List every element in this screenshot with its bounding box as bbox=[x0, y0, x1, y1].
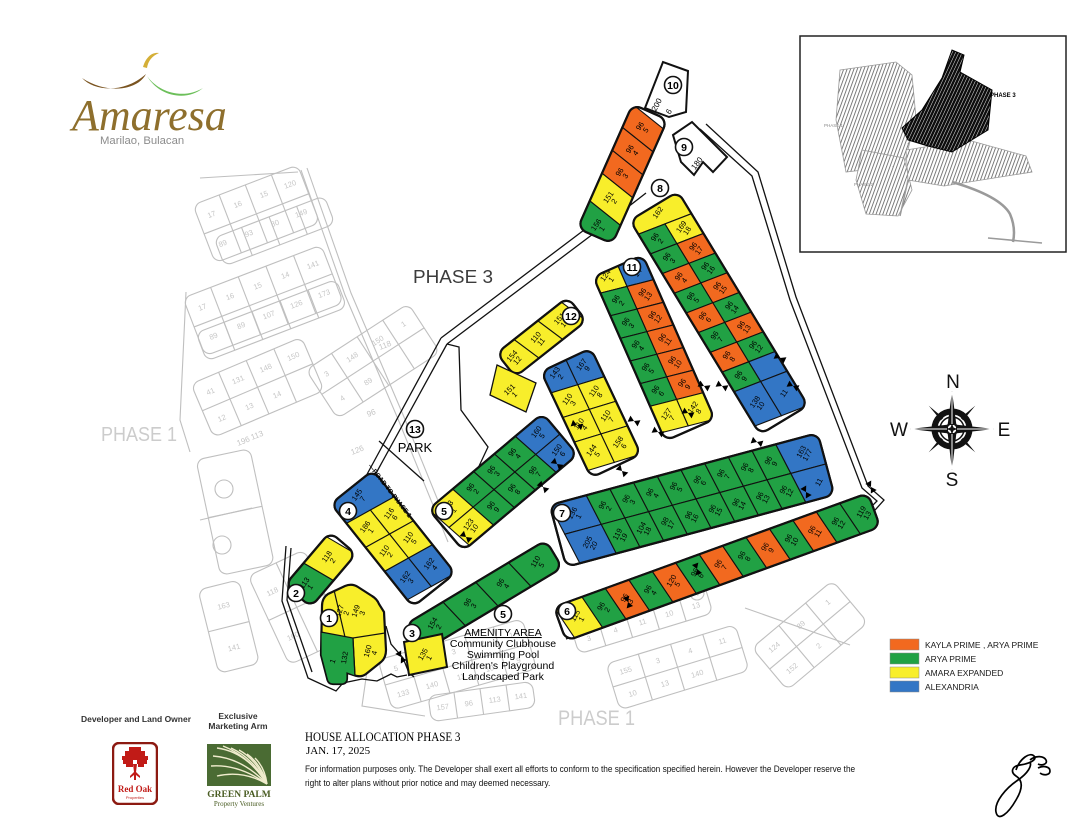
svg-text:Amaresa: Amaresa bbox=[69, 91, 227, 140]
svg-text:5: 5 bbox=[441, 506, 447, 518]
svg-text:PHASE 1: PHASE 1 bbox=[101, 424, 177, 446]
svg-text:12: 12 bbox=[565, 311, 577, 323]
svg-text:13: 13 bbox=[409, 424, 421, 436]
svg-text:S: S bbox=[946, 470, 959, 491]
svg-text:KAYLA PRIME , ARYA PRIME: KAYLA PRIME , ARYA PRIME bbox=[925, 640, 1039, 650]
svg-text:11: 11 bbox=[626, 262, 637, 274]
svg-text:Red Oak: Red Oak bbox=[118, 784, 152, 794]
svg-text:Landscaped Park: Landscaped Park bbox=[462, 671, 544, 683]
svg-text:PHASE 3: PHASE 3 bbox=[990, 93, 1016, 99]
svg-text:10: 10 bbox=[667, 80, 679, 92]
svg-text:E: E bbox=[998, 420, 1011, 441]
svg-text:2: 2 bbox=[293, 588, 299, 600]
svg-text:113: 113 bbox=[488, 694, 501, 705]
svg-text:8: 8 bbox=[657, 183, 663, 195]
svg-text:9: 9 bbox=[681, 142, 687, 154]
svg-text:PHASE 2: PHASE 2 bbox=[854, 182, 874, 187]
svg-text:96: 96 bbox=[464, 698, 474, 708]
svg-text:ALEXANDRIA: ALEXANDRIA bbox=[925, 682, 979, 692]
svg-text:Properties: Properties bbox=[126, 795, 144, 800]
svg-text:GREEN PALM: GREEN PALM bbox=[207, 790, 270, 800]
svg-text:PARK: PARK bbox=[398, 440, 433, 455]
svg-text:157: 157 bbox=[436, 702, 450, 713]
svg-text:4: 4 bbox=[345, 506, 351, 518]
svg-text:ARYA PRIME: ARYA PRIME bbox=[925, 654, 977, 664]
svg-text:5: 5 bbox=[500, 609, 506, 621]
svg-text:6: 6 bbox=[564, 606, 570, 618]
svg-text:N: N bbox=[946, 372, 960, 393]
svg-text:Property Ventures: Property Ventures bbox=[214, 800, 264, 808]
svg-text:PHASE 1: PHASE 1 bbox=[558, 707, 635, 730]
svg-text:PHASE 1: PHASE 1 bbox=[824, 123, 844, 128]
svg-text:7: 7 bbox=[559, 508, 565, 520]
svg-text:1: 1 bbox=[326, 613, 332, 625]
svg-text:Marilao, Bulacan: Marilao, Bulacan bbox=[100, 135, 184, 147]
svg-text:PHASE 3: PHASE 3 bbox=[413, 267, 493, 287]
svg-text:141: 141 bbox=[514, 691, 528, 702]
svg-text:3: 3 bbox=[409, 628, 415, 640]
svg-text:AMARA EXPANDED: AMARA EXPANDED bbox=[925, 668, 1003, 678]
svg-text:W: W bbox=[890, 420, 908, 441]
